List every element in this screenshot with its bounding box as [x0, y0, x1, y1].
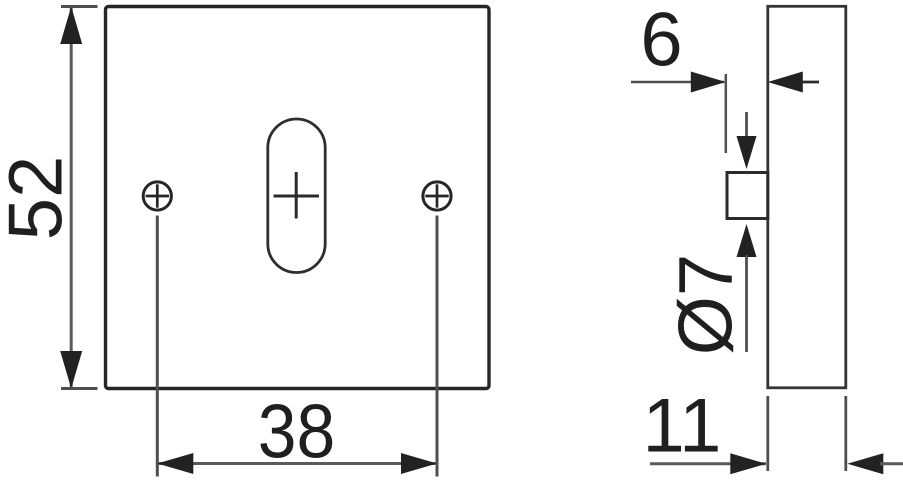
- svg-text:11: 11: [643, 384, 722, 469]
- svg-text:6: 6: [640, 0, 682, 83]
- svg-text:38: 38: [258, 390, 336, 475]
- svg-text:Ø7: Ø7: [664, 254, 749, 355]
- svg-text:52: 52: [0, 156, 79, 241]
